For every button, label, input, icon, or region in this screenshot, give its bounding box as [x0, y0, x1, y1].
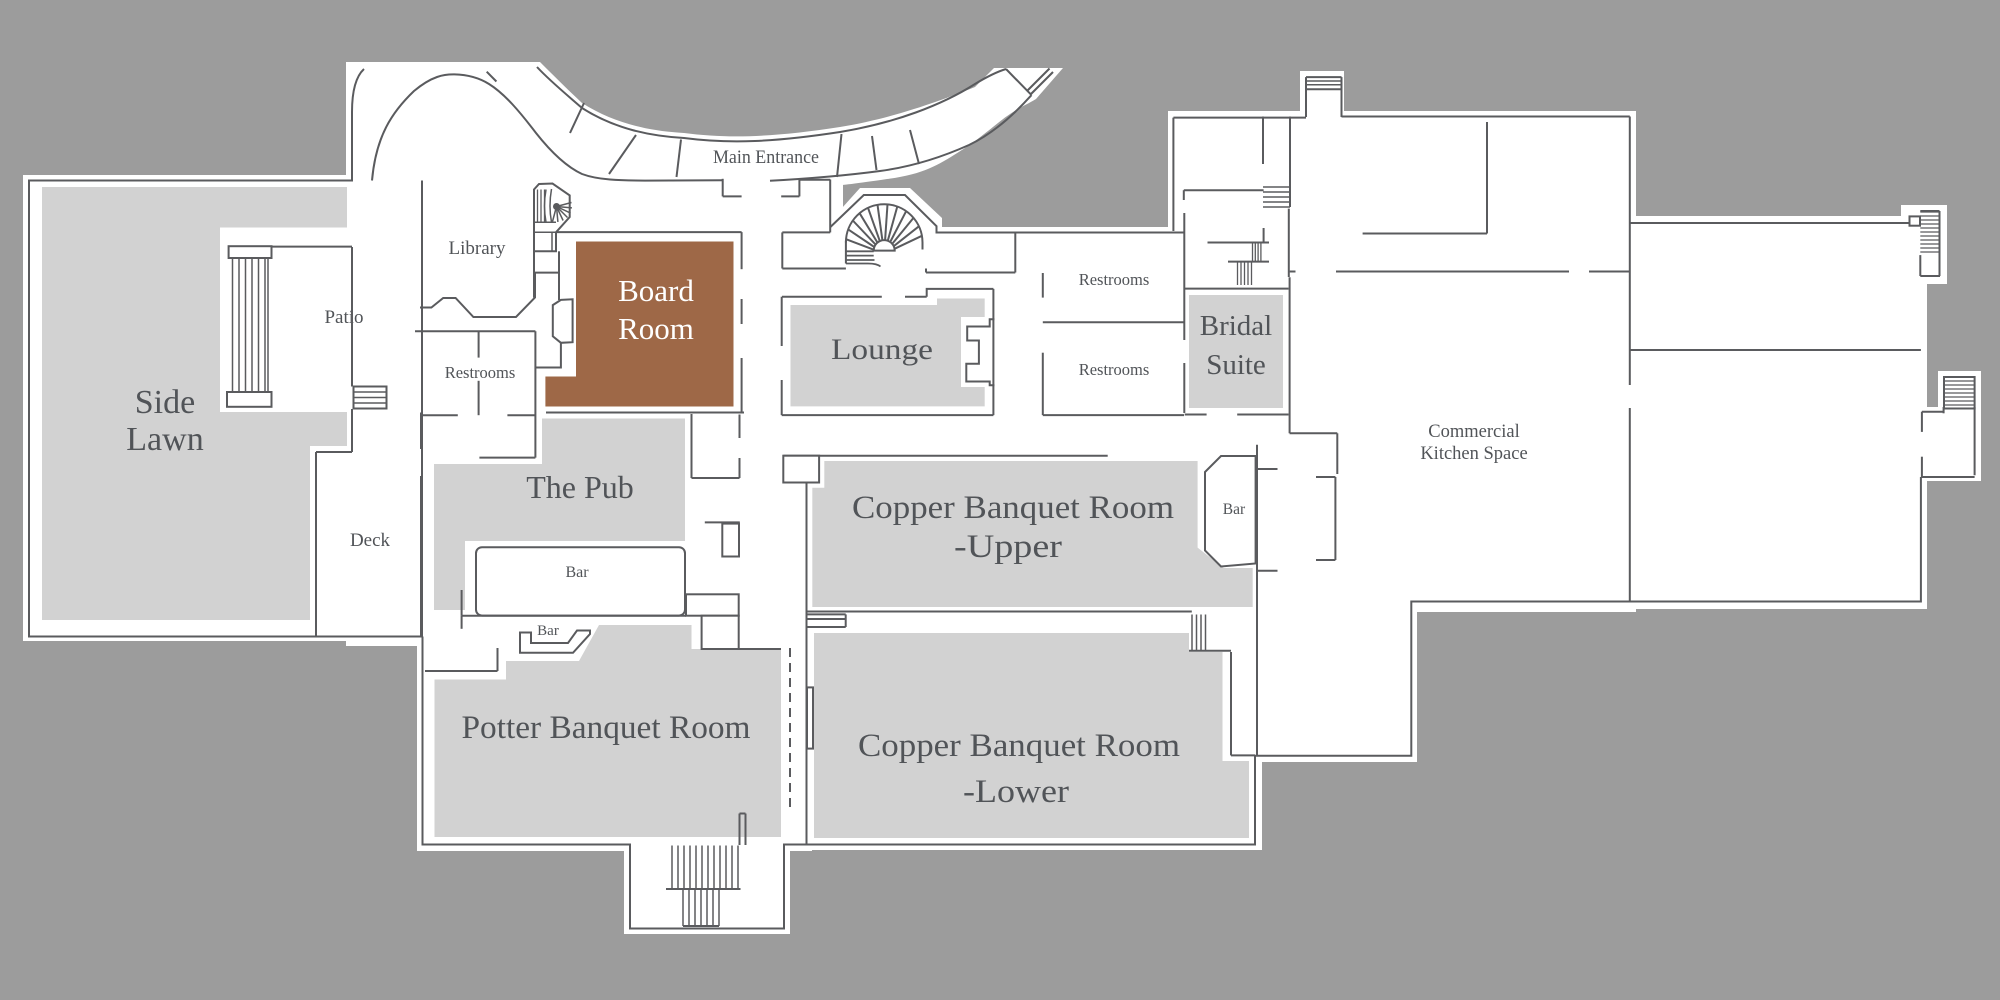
svg-text:Bar: Bar [537, 623, 559, 639]
svg-text:Copper Banquet Room: Copper Banquet Room [858, 728, 1180, 764]
svg-text:Side: Side [135, 384, 195, 421]
svg-text:Room: Room [618, 311, 694, 346]
svg-text:The Pub: The Pub [526, 469, 634, 505]
svg-text:Potter Banquet Room: Potter Banquet Room [462, 710, 751, 746]
svg-text:Deck: Deck [350, 530, 391, 551]
svg-text:Lounge: Lounge [831, 333, 933, 366]
svg-text:Lawn: Lawn [126, 421, 203, 458]
svg-text:Commercial: Commercial [1428, 422, 1519, 442]
svg-text:Kitchen Space: Kitchen Space [1420, 444, 1527, 464]
svg-text:Bridal: Bridal [1200, 310, 1273, 342]
svg-text:Suite: Suite [1206, 349, 1266, 381]
svg-text:-Upper: -Upper [954, 529, 1062, 565]
svg-text:Copper Banquet Room: Copper Banquet Room [852, 490, 1174, 526]
svg-text:Restrooms: Restrooms [1079, 270, 1150, 289]
svg-text:Main Entrance: Main Entrance [713, 147, 819, 168]
svg-text:Restrooms: Restrooms [1079, 360, 1150, 379]
svg-text:Bar: Bar [565, 564, 589, 581]
svg-text:-Lower: -Lower [963, 774, 1069, 810]
svg-text:Patio: Patio [324, 307, 363, 328]
svg-text:Restrooms: Restrooms [445, 363, 516, 382]
svg-text:Bar: Bar [1223, 501, 1246, 518]
svg-text:Board: Board [618, 273, 694, 308]
svg-text:Library: Library [449, 238, 506, 259]
